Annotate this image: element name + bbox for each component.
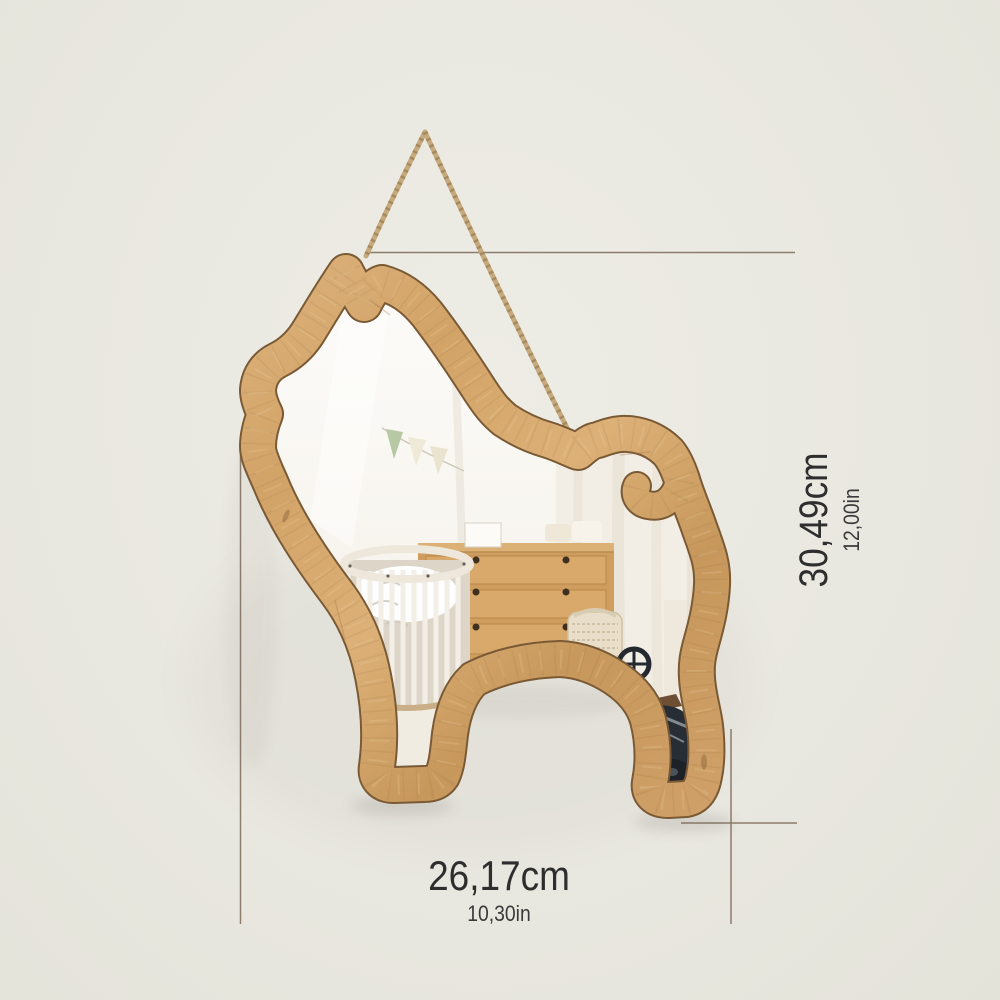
wood-knot-2: [701, 754, 707, 770]
height-in-text: 12,00in: [838, 423, 866, 617]
height-cm-text: 30,49cm: [790, 423, 838, 617]
reflected-picture-frame: [465, 523, 501, 547]
reflected-towel: [545, 524, 571, 542]
width-dimension-label: 26,17cm 10,30in: [385, 852, 614, 928]
width-cm-text: 26,17cm: [385, 852, 614, 900]
product-image: 30,49cm 12,00in 26,17cm 10,30in: [0, 0, 1000, 1000]
width-in-text: 10,30in: [385, 900, 614, 928]
rope-left-strand: [366, 132, 425, 256]
reflected-towel-2: [572, 521, 602, 542]
height-dimension-label: 30,49cm 12,00in: [790, 423, 866, 617]
